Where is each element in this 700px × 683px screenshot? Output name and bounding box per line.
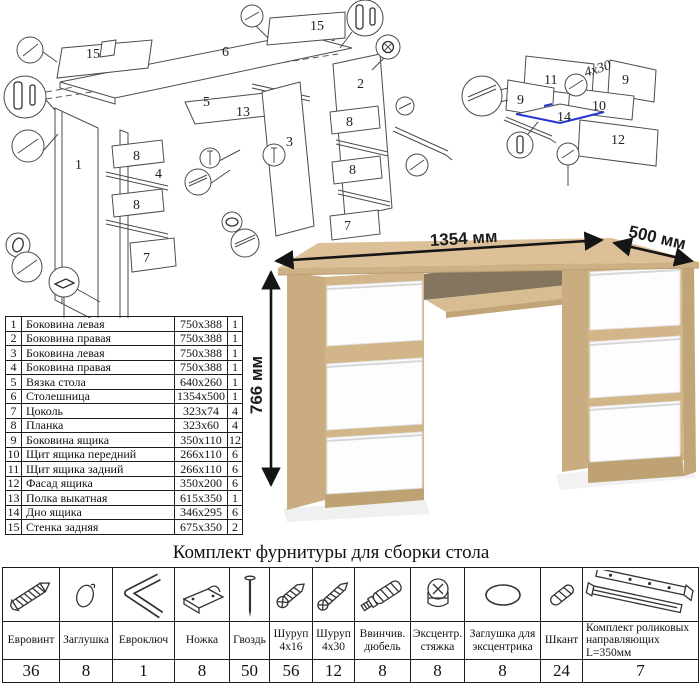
part-number: 2 bbox=[6, 331, 22, 346]
parts-row: 15Стенка задняя675x3502 bbox=[6, 520, 243, 535]
drawer-slides-icon bbox=[583, 568, 699, 622]
part-label-7a: 7 bbox=[143, 251, 150, 266]
part-name: Фасад ящика bbox=[22, 476, 175, 491]
part-size: 266x110 bbox=[175, 462, 228, 477]
part-size: 750x388 bbox=[175, 331, 228, 346]
part-label-10: 10 bbox=[592, 99, 606, 114]
part-number: 6 bbox=[6, 389, 22, 404]
part-number: 7 bbox=[6, 404, 22, 419]
part-qty: 6 bbox=[228, 505, 243, 520]
parts-row: 6Столешница1354x5001 bbox=[6, 389, 243, 404]
part-qty: 1 bbox=[228, 346, 243, 361]
part-number: 14 bbox=[6, 505, 22, 520]
parts-row: 3Боковина левая750x3881 bbox=[6, 346, 243, 361]
hardware-qty-row: 36 8 1 8 50 56 12 8 8 8 24 7 bbox=[3, 660, 699, 683]
part-label-9b: 9 bbox=[622, 73, 629, 88]
part-name: Боковина левая bbox=[22, 346, 175, 361]
cam-cap-icon bbox=[465, 568, 541, 622]
hardware-name: Шкант bbox=[541, 622, 583, 660]
cap-icon bbox=[60, 568, 113, 622]
part-qty: 12 bbox=[228, 433, 243, 448]
hardware-name: Заглушка bbox=[60, 622, 113, 660]
part-name: Боковина правая bbox=[22, 360, 175, 375]
part-size: 640x260 bbox=[175, 375, 228, 390]
part-number: 15 bbox=[6, 520, 22, 535]
foot-icon bbox=[175, 568, 230, 622]
drawer-assembly-diagram: 11 9 9 10 14 12 4x30 bbox=[440, 0, 700, 215]
parts-row: 14Дно ящика346x2956 bbox=[6, 505, 243, 520]
part-label-2: 2 bbox=[357, 77, 364, 92]
parts-row: 7Цоколь323x744 bbox=[6, 404, 243, 419]
parts-row: 5Вязка стола640x2601 bbox=[6, 375, 243, 390]
euro-screw-icon bbox=[3, 568, 60, 622]
part-name: Щит ящика задний bbox=[22, 462, 175, 477]
part-label-1: 1 bbox=[75, 158, 82, 173]
part-qty: 1 bbox=[228, 331, 243, 346]
part-size: 675x350 bbox=[175, 520, 228, 535]
parts-row: 4Боковина правая750x3881 bbox=[6, 360, 243, 375]
part-name: Цоколь bbox=[22, 404, 175, 419]
part-number: 10 bbox=[6, 447, 22, 462]
part-label-8c: 8 bbox=[346, 115, 353, 130]
parts-row: 11Щит ящика задний266x1106 bbox=[6, 462, 243, 477]
hardware-name: Шуруп 4x16 bbox=[270, 622, 313, 660]
screw-short-icon bbox=[270, 568, 313, 622]
hardware-name: Ввинчив. дюбель bbox=[355, 622, 411, 660]
part-label-15b: 15 bbox=[310, 19, 324, 34]
part-name: Вязка стола bbox=[22, 375, 175, 390]
parts-row: 9Боковина ящика350x11012 bbox=[6, 433, 243, 448]
hardware-kit-title: Комплект фурнитуры для сборки стола bbox=[0, 542, 662, 564]
part-size: 750x388 bbox=[175, 317, 228, 332]
hardware-qty: 24 bbox=[541, 660, 583, 683]
part-label-8a: 8 bbox=[133, 149, 140, 164]
part-number: 5 bbox=[6, 375, 22, 390]
part-qty: 1 bbox=[228, 389, 243, 404]
part-number: 1 bbox=[6, 317, 22, 332]
parts-row: 10Щит ящика передний266x1106 bbox=[6, 447, 243, 462]
parts-row: 1Боковина левая750x3881 bbox=[6, 317, 243, 332]
parts-row: 8Планка323x604 bbox=[6, 418, 243, 433]
hardware-name: Шуруп 4x30 bbox=[313, 622, 355, 660]
hardware-qty: 8 bbox=[355, 660, 411, 683]
part-number: 11 bbox=[6, 462, 22, 477]
hardware-qty: 56 bbox=[270, 660, 313, 683]
part-size: 350x110 bbox=[175, 433, 228, 448]
part-qty: 2 bbox=[228, 520, 243, 535]
hardware-qty: 12 bbox=[313, 660, 355, 683]
part-label-12: 12 bbox=[611, 133, 625, 148]
hardware-qty: 8 bbox=[411, 660, 465, 683]
hardware-qty: 7 bbox=[583, 660, 699, 683]
hardware-icons-row bbox=[3, 568, 699, 622]
part-label-14: 14 bbox=[557, 110, 571, 125]
part-label-8b: 8 bbox=[133, 198, 140, 213]
hardware-qty: 8 bbox=[465, 660, 541, 683]
part-qty: 6 bbox=[228, 447, 243, 462]
part-qty: 1 bbox=[228, 375, 243, 390]
hardware-qty: 8 bbox=[175, 660, 230, 683]
part-qty: 1 bbox=[228, 491, 243, 506]
hardware-name: Евроключ bbox=[113, 622, 175, 660]
part-label-8d: 8 bbox=[349, 163, 356, 178]
hardware-qty: 8 bbox=[60, 660, 113, 683]
part-size: 615x350 bbox=[175, 491, 228, 506]
part-label-3: 3 bbox=[286, 135, 293, 150]
part-name: Боковина левая bbox=[22, 317, 175, 332]
screw-in-dowel-icon bbox=[355, 568, 411, 622]
part-size: 346x295 bbox=[175, 505, 228, 520]
part-number: 12 bbox=[6, 476, 22, 491]
part-label-4: 4 bbox=[155, 167, 162, 182]
hardware-name: Заглушка для эксцентрика bbox=[465, 622, 541, 660]
part-name: Планка bbox=[22, 418, 175, 433]
hardware-names-row: Евровинт Заглушка Евроключ Ножка Гвоздь … bbox=[3, 622, 699, 660]
part-label-15a: 15 bbox=[86, 47, 100, 62]
part-qty: 4 bbox=[228, 404, 243, 419]
hardware-name: Комплект роликовых направляющих L=350мм bbox=[583, 622, 699, 660]
part-qty: 1 bbox=[228, 317, 243, 332]
cam-lock-icon bbox=[411, 568, 465, 622]
part-name: Стенка задняя bbox=[22, 520, 175, 535]
parts-row: 12Фасад ящика350x2006 bbox=[6, 476, 243, 491]
assembly-instruction-sheet: { "parts_table": { "rows": [ {"n":"1","n… bbox=[0, 0, 700, 677]
part-qty: 6 bbox=[228, 462, 243, 477]
part-qty: 1 bbox=[228, 360, 243, 375]
hex-key-icon bbox=[113, 568, 175, 622]
hardware-qty: 50 bbox=[230, 660, 270, 683]
part-size: 323x74 bbox=[175, 404, 228, 419]
hardware-kit-table: Евровинт Заглушка Евроключ Ножка Гвоздь … bbox=[2, 567, 699, 683]
part-size: 350x200 bbox=[175, 476, 228, 491]
part-size: 750x388 bbox=[175, 360, 228, 375]
part-number: 9 bbox=[6, 433, 22, 448]
part-name: Боковина правая bbox=[22, 331, 175, 346]
parts-row: 13Полка выкатная615x3501 bbox=[6, 491, 243, 506]
part-qty: 4 bbox=[228, 418, 243, 433]
desk-body bbox=[278, 238, 699, 510]
nail-icon bbox=[230, 568, 270, 622]
part-number: 3 bbox=[6, 346, 22, 361]
part-name: Столешница bbox=[22, 389, 175, 404]
parts-table: 1Боковина левая750x3881 2Боковина правая… bbox=[5, 316, 243, 535]
part-size: 750x388 bbox=[175, 346, 228, 361]
hardware-qty: 1 bbox=[113, 660, 175, 683]
part-label-6: 6 bbox=[222, 45, 229, 60]
parts-row: 2Боковина правая750x3881 bbox=[6, 331, 243, 346]
part-qty: 6 bbox=[228, 476, 243, 491]
part-number: 4 bbox=[6, 360, 22, 375]
screw-long-icon bbox=[313, 568, 355, 622]
part-name: Дно ящика bbox=[22, 505, 175, 520]
part-number: 8 bbox=[6, 418, 22, 433]
hardware-qty: 36 bbox=[3, 660, 60, 683]
part-number: 13 bbox=[6, 491, 22, 506]
hardware-name: Гвоздь bbox=[230, 622, 270, 660]
hardware-name: Евровинт bbox=[3, 622, 60, 660]
part-size: 1354x500 bbox=[175, 389, 228, 404]
wood-dowel-icon bbox=[541, 568, 583, 622]
height-dimension-label: 766 мм bbox=[250, 356, 266, 414]
part-label-11: 11 bbox=[544, 73, 557, 88]
desk-render-main: 1354 мм 500 мм 766 мм bbox=[250, 212, 700, 547]
part-name: Щит ящика передний bbox=[22, 447, 175, 462]
part-size: 323x60 bbox=[175, 418, 228, 433]
part-label-5: 5 bbox=[203, 95, 210, 110]
part-label-13: 13 bbox=[236, 105, 250, 120]
hardware-name: Ножка bbox=[175, 622, 230, 660]
hardware-name: Эксцентр. стяжка bbox=[411, 622, 465, 660]
part-name: Боковина ящика bbox=[22, 433, 175, 448]
part-name: Полка выкатная bbox=[22, 491, 175, 506]
part-size: 266x110 bbox=[175, 447, 228, 462]
part-label-9a: 9 bbox=[517, 93, 524, 108]
